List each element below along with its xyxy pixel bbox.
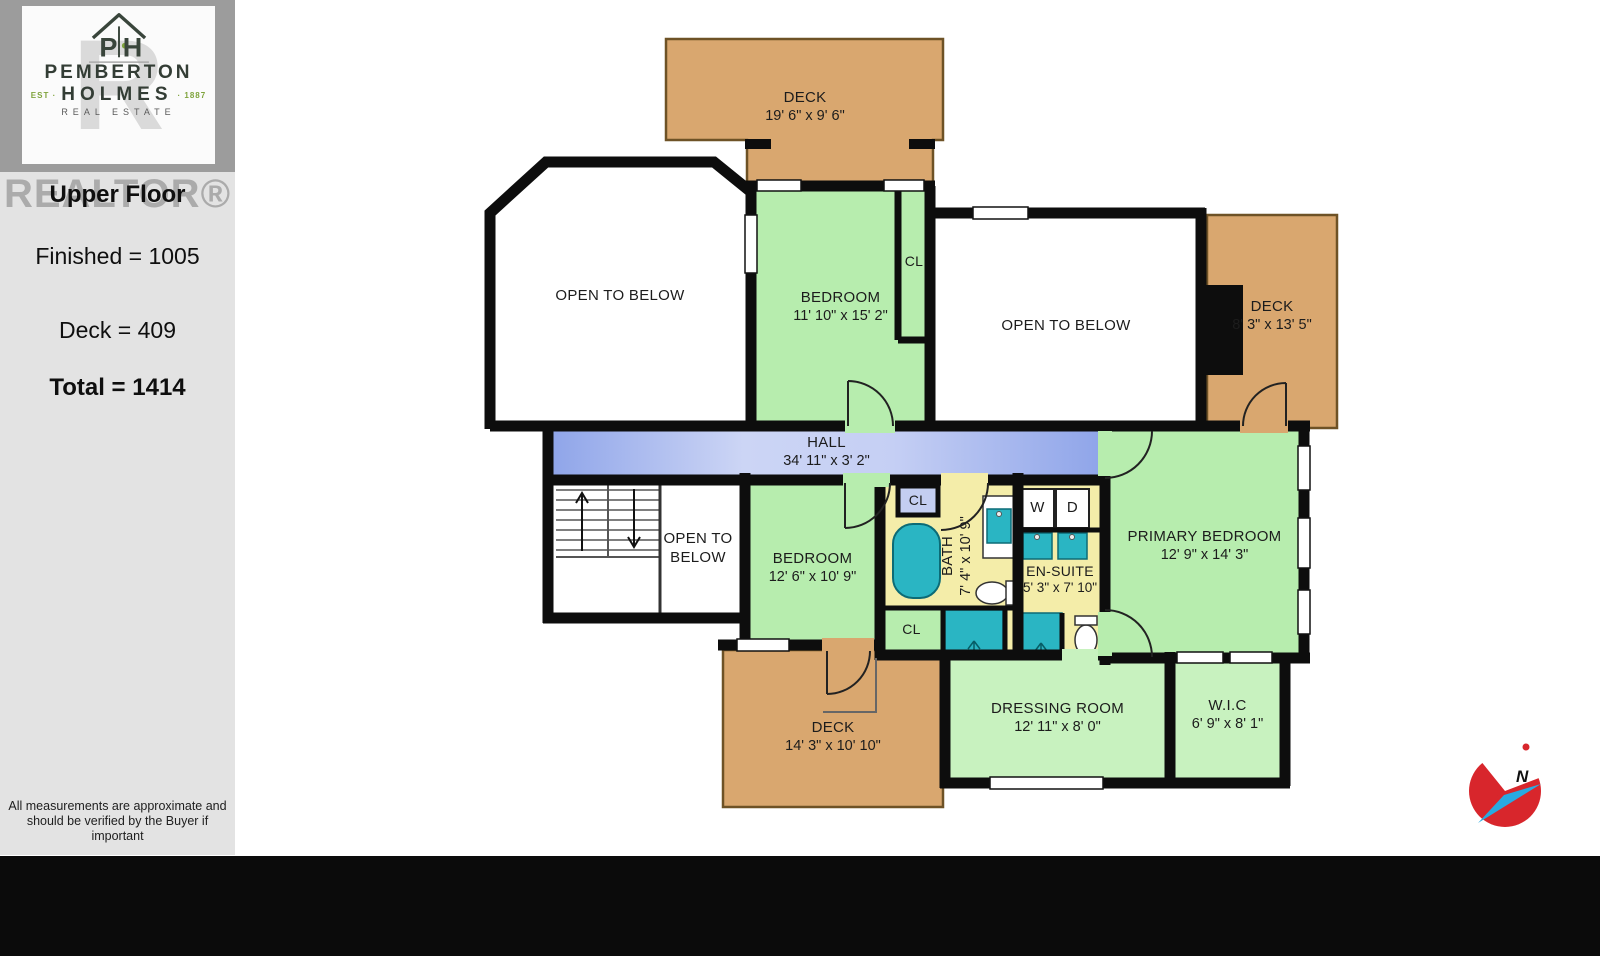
- room-name: OPEN TO BELOW: [1001, 317, 1130, 336]
- stat-total: Total = 1414: [0, 374, 235, 402]
- room-name: W.I.C: [1208, 697, 1246, 716]
- room-name: EN-SUITE: [1026, 563, 1094, 581]
- room-dims: 12' 6" x 10' 9": [769, 568, 857, 586]
- room-dims: 6' 9" x 8' 1": [1192, 715, 1263, 733]
- room-name: BEDROOM: [801, 289, 881, 308]
- washer-label: W: [1021, 489, 1054, 528]
- bath-toilet: [976, 582, 1008, 604]
- brand-est: EST ·: [31, 91, 56, 100]
- logo-panel: R P H PEMBERTON EST · HOLMES · 1887: [0, 0, 235, 172]
- room-label-bedroom2: BEDROOM 12' 6" x 10' 9": [745, 545, 880, 591]
- compass-rose-icon: N: [1460, 735, 1560, 835]
- dryer-letter: D: [1067, 499, 1078, 518]
- disclaimer-line2: should be verified by the Buyer if impor…: [0, 814, 235, 844]
- room-dims: 12' 11" x 8' 0": [1014, 718, 1101, 736]
- house-icon: P H: [84, 9, 154, 65]
- room-name: HALL: [807, 434, 846, 453]
- room-name: OPEN TO BELOW: [655, 530, 741, 568]
- room-label-hall: HALL 34' 11" x 3' 2": [548, 429, 1105, 475]
- brand-tagline: REAL ESTATE: [22, 107, 215, 117]
- sidebar: R P H PEMBERTON EST · HOLMES · 1887: [0, 0, 235, 855]
- floor-title: Upper Floor: [0, 181, 235, 209]
- stat-finished: Finished = 1005: [0, 243, 235, 270]
- disclaimer-line1: All measurements are approximate and: [0, 799, 235, 814]
- room-dims: 19' 6" x 9' 6": [765, 107, 845, 125]
- footer-bar: FLOOR PLAN PREPARED FOR EXCLUSIVE USE OF…: [0, 856, 1600, 956]
- room-label-open-below-left: OPEN TO BELOW: [495, 283, 745, 309]
- room-dims: 8' 3" x 13' 5": [1232, 316, 1312, 334]
- room-name: DECK: [812, 719, 855, 738]
- closet-name: CL: [902, 621, 921, 639]
- brand-year: · 1887: [178, 91, 207, 100]
- closet2-label: CL: [898, 486, 938, 515]
- room-label-deck-top: DECK 19' 6" x 9' 6": [660, 84, 950, 130]
- room-name: BEDROOM: [773, 550, 853, 569]
- room-dims: 11' 10" x 15' 2": [793, 307, 888, 325]
- room-label-primary-bedroom: PRIMARY BEDROOM 12' 9" x 14' 3": [1105, 523, 1304, 569]
- room-label-deck-bottom: DECK 14' 3" x 10' 10": [723, 714, 943, 760]
- disclaimer: All measurements are approximate and sho…: [0, 799, 235, 843]
- room-name: PRIMARY BEDROOM: [1128, 528, 1282, 547]
- compass-north-label: N: [1516, 767, 1529, 786]
- monogram-h: H: [122, 32, 142, 62]
- floor-plan-page: DECK 19' 6" x 9' 6" OPEN TO BELOW BEDROO…: [0, 0, 1600, 965]
- room-label-open-below-stairs: OPEN TO BELOW: [655, 527, 741, 571]
- brand-logo: R P H PEMBERTON EST · HOLMES · 1887: [22, 6, 215, 164]
- room-label-wic: W.I.C 6' 9" x 8' 1": [1170, 693, 1285, 737]
- room-label-bedroom1: BEDROOM 11' 10" x 15' 2": [751, 284, 930, 330]
- room-label-ensuite: EN-SUITE 5' 3" x 7' 10": [1008, 560, 1112, 600]
- room-dims: 14' 3" x 10' 10": [785, 737, 881, 755]
- room-name: DECK: [1251, 298, 1294, 317]
- room-label-deck-right: DECK 8' 3" x 13' 5": [1207, 293, 1337, 339]
- closet-name: CL: [905, 253, 924, 271]
- closet3-label: CL: [880, 618, 943, 642]
- room-dims: 5' 3" x 7' 10": [1023, 580, 1097, 597]
- room-name: DRESSING ROOM: [991, 700, 1124, 719]
- dryer-label: D: [1056, 489, 1089, 528]
- room-label-bath: BATH 7' 4" x 10' 9": [935, 496, 979, 616]
- room-dims: 12' 9" x 14' 3": [1161, 546, 1249, 564]
- room-name: OPEN TO BELOW: [555, 287, 684, 306]
- brand-name-bottom: HOLMES: [61, 84, 172, 106]
- closet-name: CL: [909, 492, 928, 510]
- closet1-label: CL: [896, 250, 932, 274]
- monogram-p: P: [99, 32, 117, 62]
- room-name: DECK: [784, 89, 827, 108]
- room-label-dressing-room: DRESSING ROOM 12' 11" x 8' 0": [945, 695, 1170, 741]
- stat-deck: Deck = 409: [0, 317, 235, 344]
- brand-name-top: PEMBERTON: [22, 62, 215, 84]
- room-dims: 7' 4" x 10' 9": [957, 516, 975, 596]
- logo-content: P H PEMBERTON EST · HOLMES · 1887 REAL E…: [22, 9, 215, 117]
- room-name: BATH: [939, 536, 958, 576]
- room-dims: 34' 11" x 3' 2": [783, 452, 870, 470]
- room-label-open-below-right: OPEN TO BELOW: [935, 313, 1197, 339]
- bathtub: [893, 524, 940, 598]
- washer-letter: W: [1030, 499, 1044, 518]
- brand-name-row: EST · HOLMES · 1887: [22, 84, 215, 106]
